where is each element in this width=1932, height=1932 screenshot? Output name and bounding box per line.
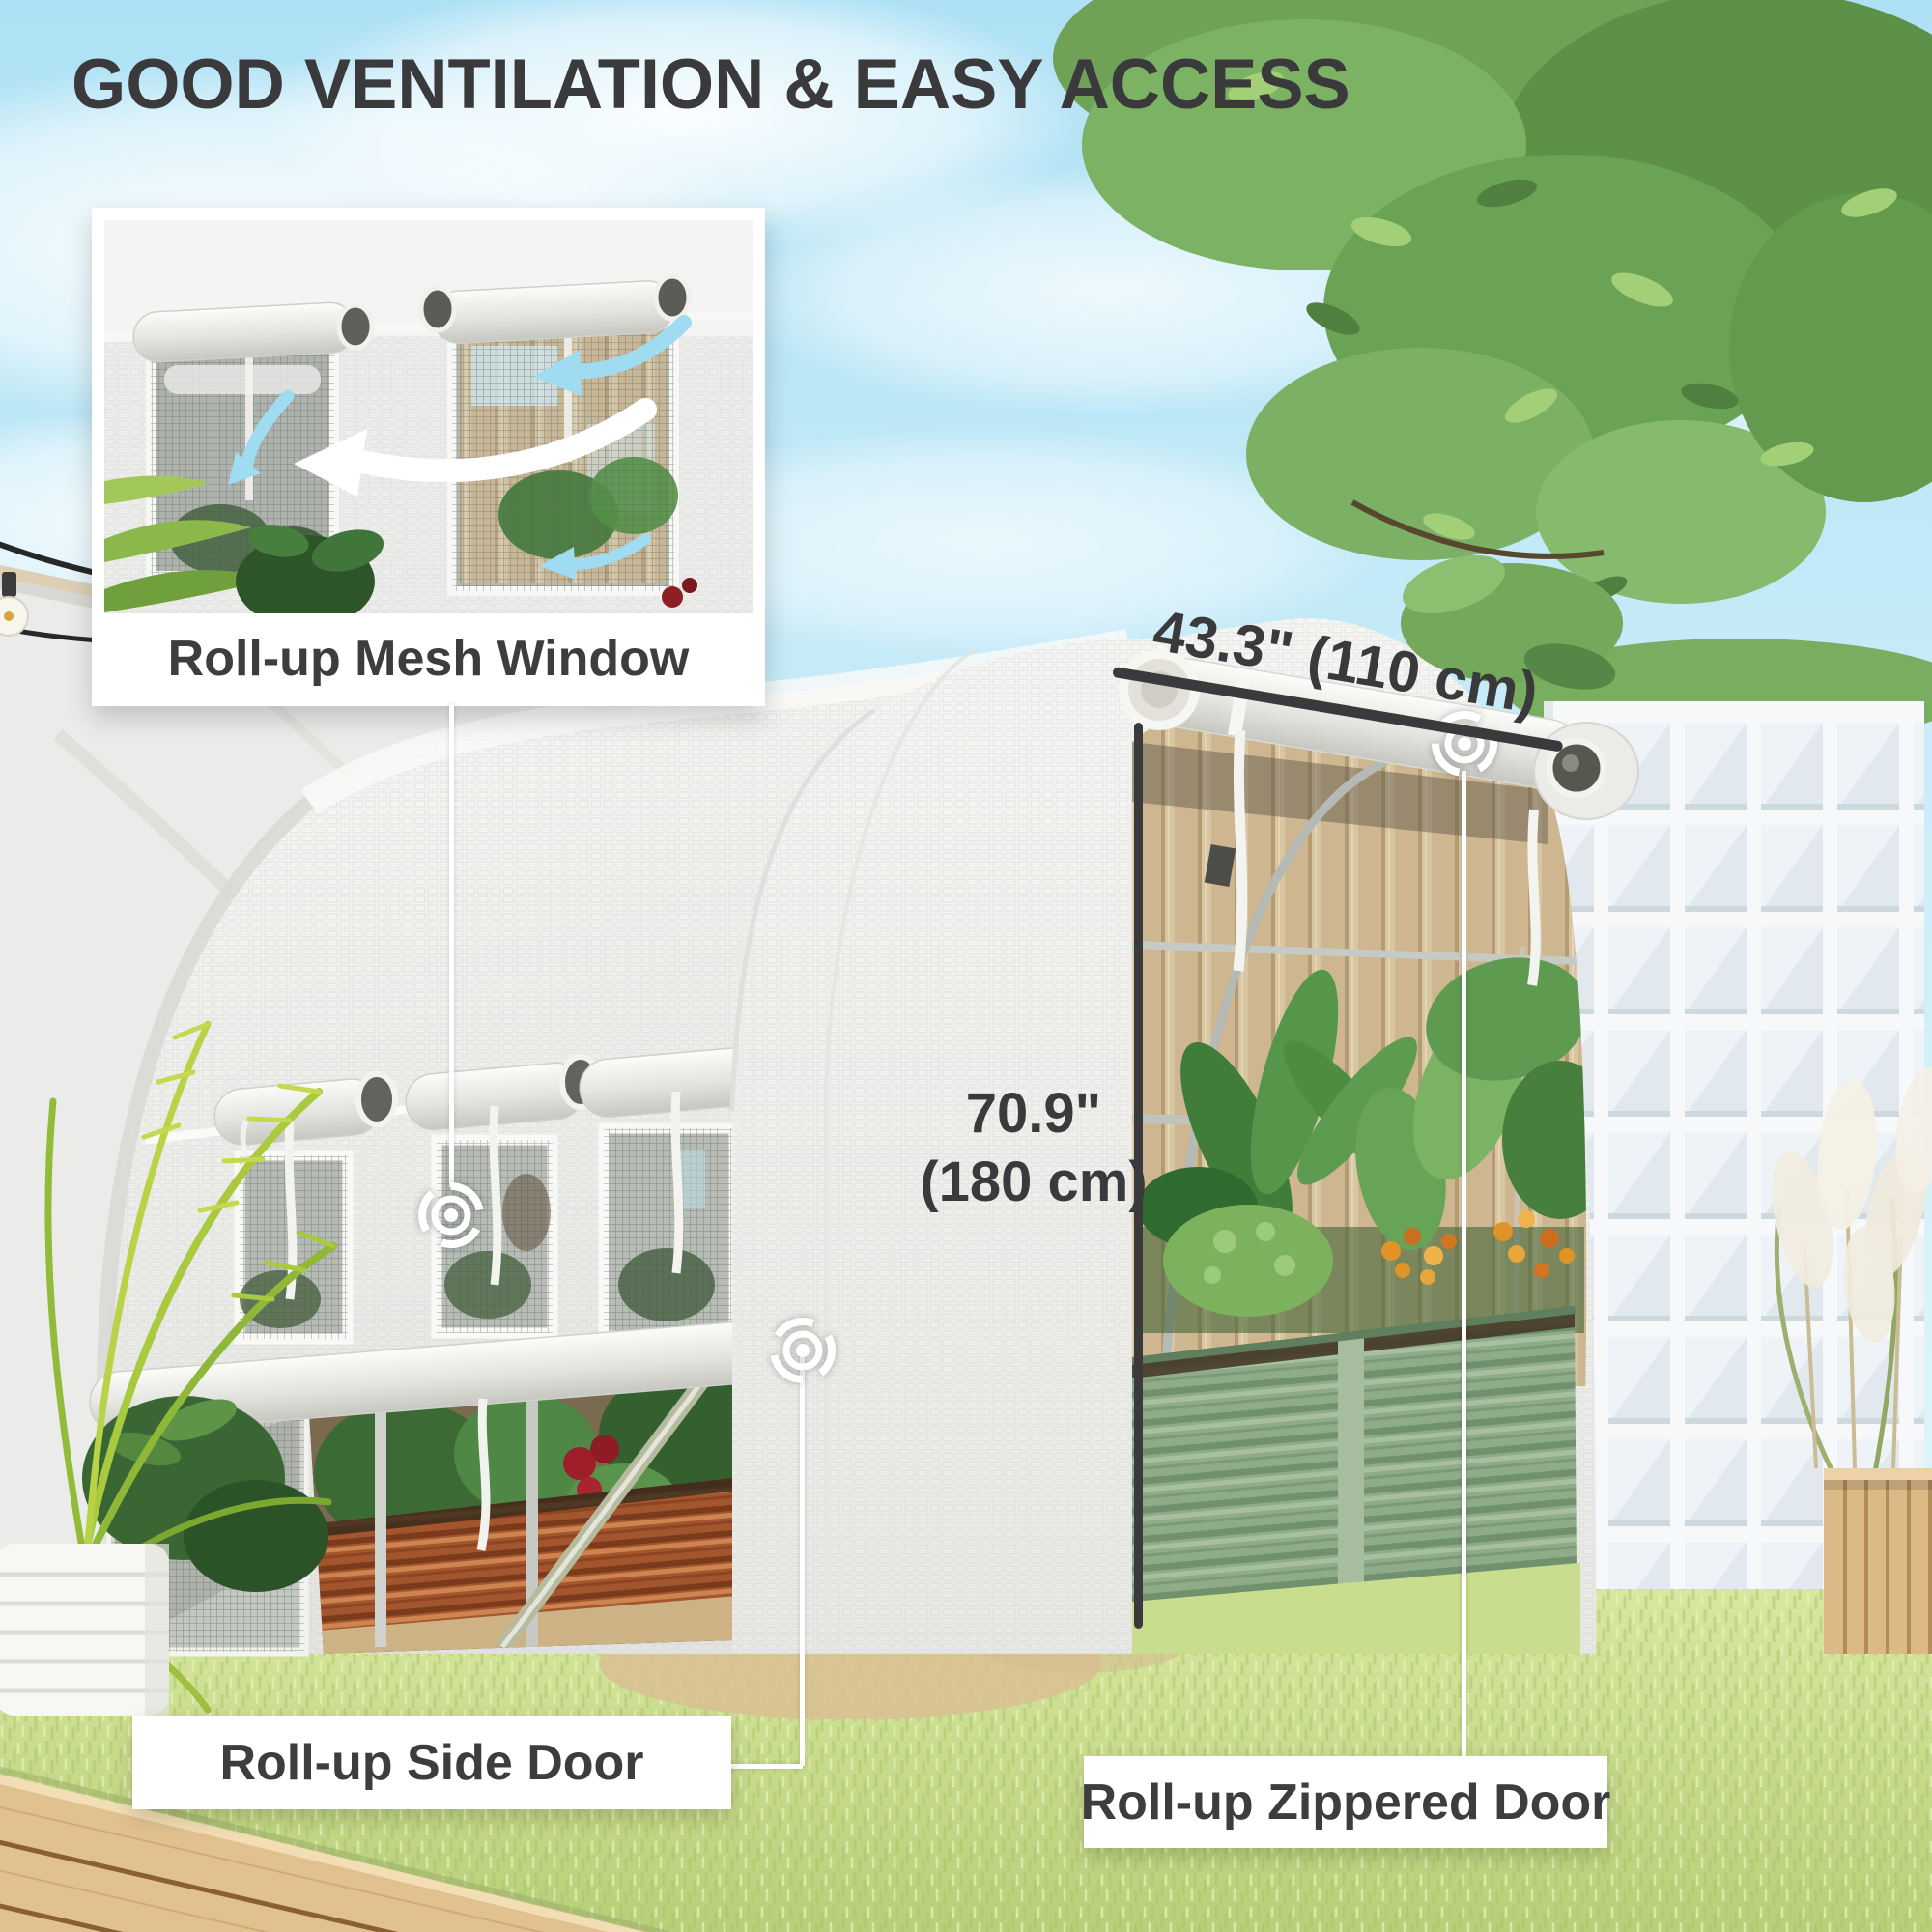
wood-planter-box xyxy=(1824,1468,1932,1654)
side-door-connector-line xyxy=(800,1356,805,1766)
product-feature-image: GOOD VENTILATION & EASY ACCESS xyxy=(0,0,1932,1932)
mesh-window-connector-line xyxy=(449,704,454,1187)
door-height-inches: 70.9" xyxy=(874,1080,1193,1149)
zippered-door-label: Roll-up Zippered Door xyxy=(1084,1756,1607,1848)
door-height-value: 70.9" (180 cm) xyxy=(874,1080,1193,1217)
side-door-connector-elbow xyxy=(731,1764,803,1769)
door-height-cm: (180 cm) xyxy=(874,1149,1193,1217)
mesh-window xyxy=(240,1128,734,1339)
side-door-target-icon xyxy=(768,1316,838,1385)
front-door-interior xyxy=(1121,691,1618,1654)
zippered-door-connector-line xyxy=(1462,771,1466,1758)
mesh-window-closeup-photo xyxy=(104,220,753,613)
side-door-label: Roll-up Side Door xyxy=(132,1716,731,1809)
mesh-window-closeup xyxy=(104,220,753,613)
mesh-window-target-icon xyxy=(416,1180,486,1250)
green-raised-bed xyxy=(1132,1306,1577,1615)
mesh-window-label: Roll-up Mesh Window xyxy=(104,613,753,704)
white-ribbed-pot xyxy=(0,1544,169,1716)
page-title: GOOD VENTILATION & EASY ACCESS xyxy=(71,44,1350,125)
mesh-window-inset: Roll-up Mesh Window xyxy=(92,208,765,706)
